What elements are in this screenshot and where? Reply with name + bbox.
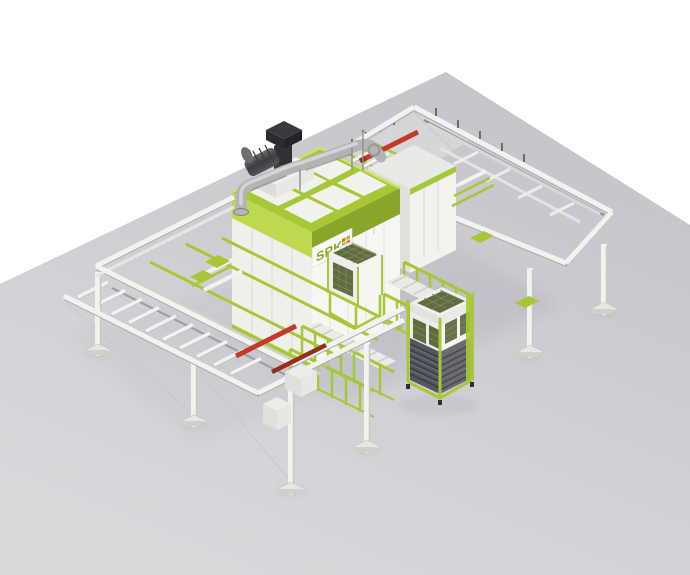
pedestal-box-1 bbox=[263, 397, 291, 430]
isometric-scene: SPK bbox=[0, 0, 690, 575]
render-canvas: SPK bbox=[0, 0, 690, 575]
